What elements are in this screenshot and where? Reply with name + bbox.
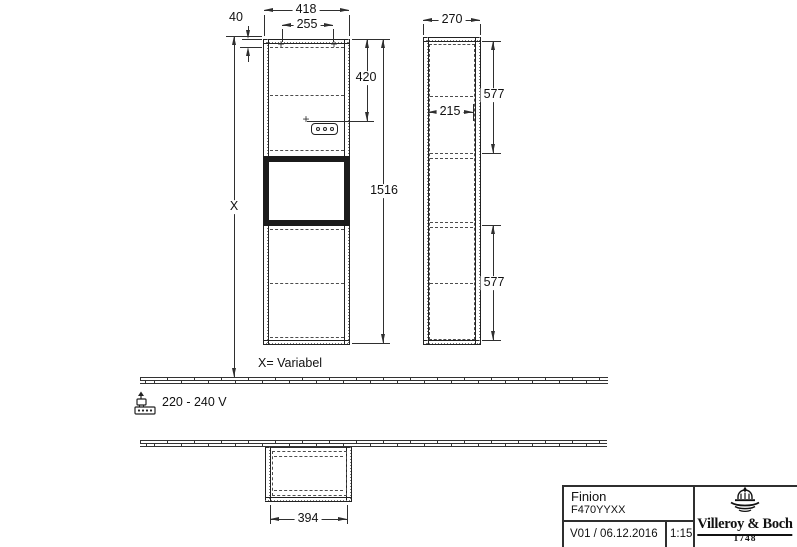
dim-side-depth: 270 [439,13,466,27]
title-block-scale-divider [665,520,667,547]
front-shelf-lower [270,283,344,284]
ext-577b-bottom [482,340,501,341]
title-block-left-border [562,485,564,547]
dim-side-inner-depth: 215 [437,105,464,119]
wall-hatch-row [140,443,607,447]
front-bottom-panel [263,340,350,345]
ext-270-left [423,24,424,35]
plan-hidden-top-inner [274,456,343,457]
drawing-sheet: + + + 418 255 40 42 [0,0,797,547]
dim-front-top-gap: 40 [226,11,246,25]
ext-418-left [264,15,265,36]
dim-front-inner-width: 255 [294,18,321,32]
ext-1516-bottom [352,343,390,344]
ext-270-right [480,24,481,35]
dim-577b-arrow-up [491,225,495,234]
dim-420-arrow-up [365,39,369,48]
plan-hidden-bottom-inner [274,490,343,491]
front-open-shelf [263,156,350,226]
front-hidden-mid-lower [270,229,344,230]
dim-270-arrow-left [423,18,432,22]
ext-394-left [270,505,271,524]
ext-255-right [333,29,334,42]
ext-40-bottom [240,47,262,48]
dim-variable-height: X [227,200,241,214]
dim-394-arrow-left [270,517,279,521]
dim-front-total-height: 1516 [367,184,401,198]
dim-215-arrow-right [464,110,473,114]
dim-40-arrow-up [246,47,250,56]
front-shelf-upper [270,95,344,96]
ext-215-right [473,104,474,121]
floor-section-line [140,377,608,384]
side-shelf-upper [430,96,473,97]
side-top-panel [423,37,481,42]
side-mid-lower-a [430,222,473,223]
side-mid-lower-b [430,227,473,228]
brand-year: 1748 [734,534,757,544]
dim-418-arrow-left [264,8,273,12]
power-plug-icon [133,391,159,415]
ext-40-top [242,39,262,40]
dim-577t-arrow-up [491,41,495,50]
dim-x-arrow-down [232,368,236,377]
dim-40-arrow-down [246,30,250,39]
floor-hatch-row [140,380,608,384]
version-date: V01 / 06.12.2016 [570,528,658,540]
dim-270-arrow-right [471,18,480,22]
ext-418-right [349,15,350,36]
dim-255-arrow-right [324,23,333,27]
plan-front-panel [265,497,352,502]
side-hidden-outline [429,44,475,340]
plan-back-edge [265,447,352,448]
dim-front-socket-height: 420 [353,71,380,85]
dim-plan-width: 394 [295,512,322,526]
brand-crown-icon [723,487,767,514]
dim-x-arrow-up [232,36,236,45]
title-block-row-divider [562,520,693,522]
dim-420-arrow-down [365,112,369,121]
product-name: Finion [571,489,606,504]
front-hidden-bottom-edge [270,337,344,338]
article-number: F470YYXX [571,504,625,516]
dim-40-stub-bottom [248,56,249,62]
socket-icon [311,123,338,135]
dim-577t-arrow-down [491,144,495,153]
side-front-panel [475,37,481,345]
dim-1516-arrow-up [381,39,385,48]
variable-note: X= Variabel [258,356,322,370]
fixing-mark-right: + [330,38,337,50]
ext-255-left [282,29,283,42]
dim-side-upper-height: 577 [481,88,508,102]
dim-418-arrow-right [340,8,349,12]
ext-394-right [347,505,348,524]
ext-577t-bottom [482,153,501,154]
title-block-logo-divider [693,485,695,547]
side-mid-upper-b [430,158,473,159]
dim-1516-arrow-down [381,334,385,343]
voltage-note: 220 - 240 V [162,395,227,409]
plan-left-panel [265,447,271,502]
side-bottom-panel [423,340,481,345]
drawing-scale: 1:15 [670,528,692,540]
socket-leader-line [307,121,374,122]
side-shelf-lower [430,283,473,284]
socket-position-mark: + [302,113,309,125]
front-hidden-mid-upper [270,150,344,151]
dim-255-arrow-left [282,23,291,27]
side-mid-upper-a [430,153,473,154]
brand-name: Villeroy & Boch [697,516,792,536]
dim-side-lower-height: 577 [481,276,508,290]
dim-front-width: 418 [293,3,320,17]
wall-section-line [140,440,607,447]
dim-577b-arrow-down [491,331,495,340]
dim-394-arrow-right [338,517,347,521]
fixing-mark-left: + [277,38,284,50]
